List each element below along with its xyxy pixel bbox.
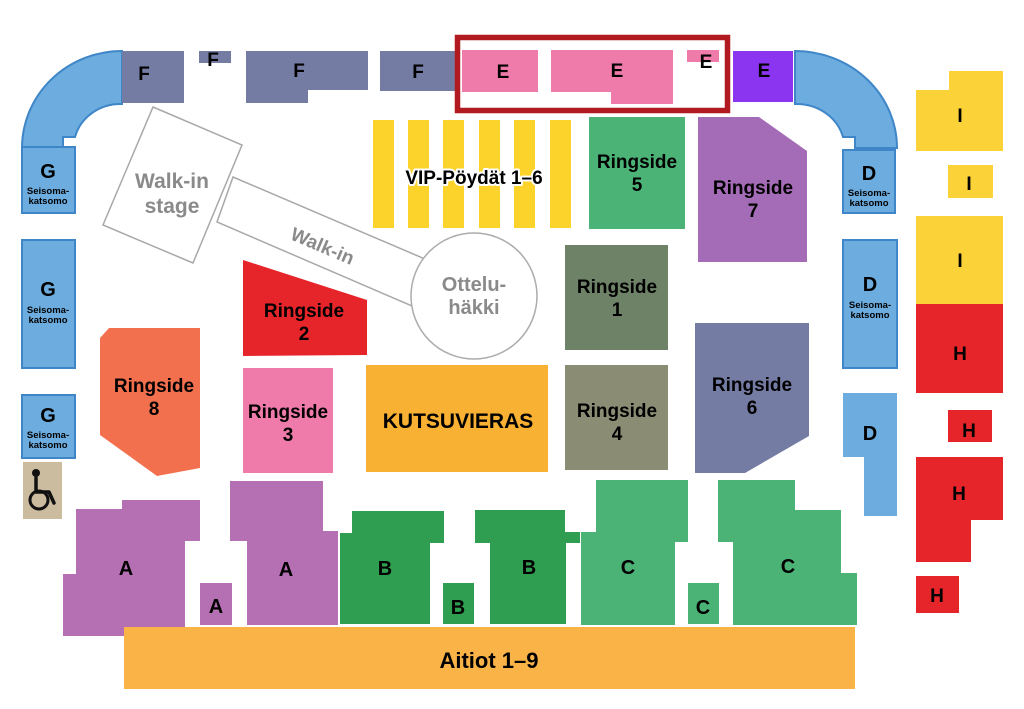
section-ringside-5[interactable] <box>589 117 685 229</box>
section-a-3-label: A <box>279 559 293 581</box>
section-e-2-label: E <box>611 61 624 82</box>
section-a-2-label: A <box>209 596 223 618</box>
section-c-3[interactable] <box>718 480 857 625</box>
vip-tables-label: VIP-Pöydät 1–6 <box>405 168 542 189</box>
section-d-3-label: D <box>863 423 877 445</box>
section-g-2-label-1: Seisoma-katsomo <box>27 305 69 326</box>
section-kutsuvieras-label: KUTSUVIERAS <box>383 410 534 433</box>
section-d-1-label-1: Seisoma-katsomo <box>848 188 890 209</box>
section-d-3[interactable] <box>843 393 897 516</box>
section-f-3-label: F <box>293 61 305 82</box>
arena-map: Walk-inWalk-instageOttelu-häkkiFFFFEEEEG… <box>0 0 1024 709</box>
section-f-4-label: F <box>412 62 424 83</box>
section-b-2-label: B <box>451 597 465 619</box>
arc-left[interactable] <box>22 51 122 148</box>
section-i-3-label: I <box>957 251 962 272</box>
section-g-3-label: G <box>40 405 56 427</box>
section-c-3-label: C <box>781 556 795 578</box>
section-f-1[interactable] <box>122 51 184 103</box>
section-e-4-label: E <box>758 61 771 82</box>
section-c-1-label: C <box>621 557 635 579</box>
arc-right[interactable] <box>795 51 897 148</box>
seating-map-page: Walk-inWalk-instageOttelu-häkkiFFFFEEEEG… <box>0 0 1024 709</box>
section-aitiot-label: Aitiot 1–9 <box>439 648 538 673</box>
section-d-2-label: D <box>863 274 877 296</box>
section-h-3[interactable] <box>916 457 1003 562</box>
section-b-3-label: B <box>522 557 536 579</box>
section-h-4-label: H <box>930 586 944 607</box>
section-d-2-label-1: Seisoma-katsomo <box>849 300 891 321</box>
section-g-1-label-1: Seisoma-katsomo <box>27 186 69 207</box>
vip-table-stripe-6[interactable] <box>550 120 571 228</box>
section-f-2-label: F <box>207 50 219 71</box>
section-h-3-label: H <box>952 484 966 505</box>
section-f-1-label: F <box>138 64 150 85</box>
section-g-2-label: G <box>40 279 56 301</box>
section-i-2-label: I <box>966 174 971 195</box>
section-g-3-label-1: Seisoma-katsomo <box>27 430 69 451</box>
ottelu-cage-label: Ottelu-häkki <box>442 274 506 319</box>
section-g-2[interactable] <box>22 240 75 368</box>
section-h-2-label: H <box>962 421 976 442</box>
section-c-1[interactable] <box>581 480 688 625</box>
section-e-3-label: E <box>700 52 713 73</box>
section-i-1-label: I <box>957 106 962 127</box>
section-g-1-label: G <box>40 161 56 183</box>
section-d-1-label: D <box>862 163 876 185</box>
section-e-1-label: E <box>497 62 510 83</box>
section-a-3[interactable] <box>230 481 338 625</box>
section-h-1-label: H <box>953 344 967 365</box>
vip-table-stripe-1[interactable] <box>373 120 394 228</box>
section-c-2-label: C <box>696 597 710 619</box>
section-a-1-label: A <box>119 558 133 580</box>
section-b-1-label: B <box>378 558 392 580</box>
section-f-3[interactable] <box>246 51 368 103</box>
ottelu-cage <box>411 233 537 359</box>
